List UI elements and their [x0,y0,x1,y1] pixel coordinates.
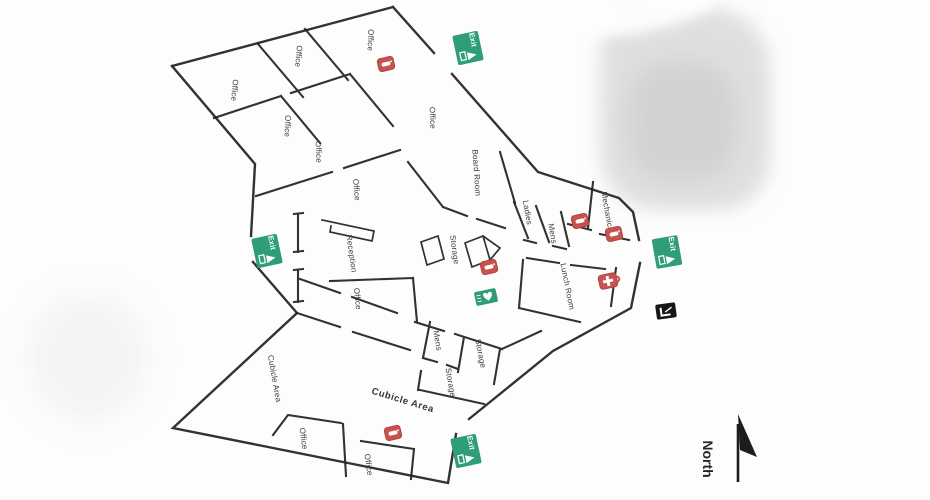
room-label-storage: Storage [448,234,461,265]
wall-reception-area [294,213,397,313]
room-label-office: Office [297,427,309,450]
room-label-ladies: Ladies [521,200,534,226]
room-label-reception: Reception [344,234,358,273]
room-label-office: Office [283,115,293,138]
room-label-office: Office [362,453,374,476]
fire-extinguisher-icon [377,56,396,72]
wall-bottom-wing [273,278,541,479]
room-label-storage: Storage [443,367,457,398]
room-label-mens: Mens [431,330,443,352]
exit-sign-bottom: Exit [450,434,482,469]
room-label-cubicle-area: Cubicle Area [266,354,283,403]
room-label-office: Office [351,178,362,201]
north-label: North [700,440,716,477]
room-label-lunch-room: Lunch Room [559,262,577,310]
north-compass: North [700,414,757,482]
room-label-board-room: Board Room [470,149,482,197]
room-label-office: Office [428,107,438,130]
fire-alarm-pull-station-icon [655,302,677,320]
room-label-office: Office [293,45,304,68]
fire-extinguisher-icon [571,213,590,229]
fire-extinguisher-icon [384,425,403,441]
room-label-office: Office [314,141,324,164]
room-labels: Office Office Office Office Office Offic… [229,29,616,477]
floor-plan-drawing: Office Office Office Office Office Offic… [0,0,930,500]
fire-extinguisher-icon [480,259,499,275]
exit-sign-left: Exit [251,234,283,269]
north-arrow-icon [738,414,757,457]
exit-sign-top: Exit [452,31,484,66]
room-label-office: Office [366,29,376,52]
floor-plan-page: Office Office Office Office Office Offic… [0,0,930,500]
walls [172,7,640,483]
first-aid-kit-icon [598,272,621,290]
exit-sign-right: Exit [652,235,683,269]
aed-icon [474,288,498,306]
room-label-office: Office [229,79,240,102]
room-label-office: Office [352,287,363,310]
